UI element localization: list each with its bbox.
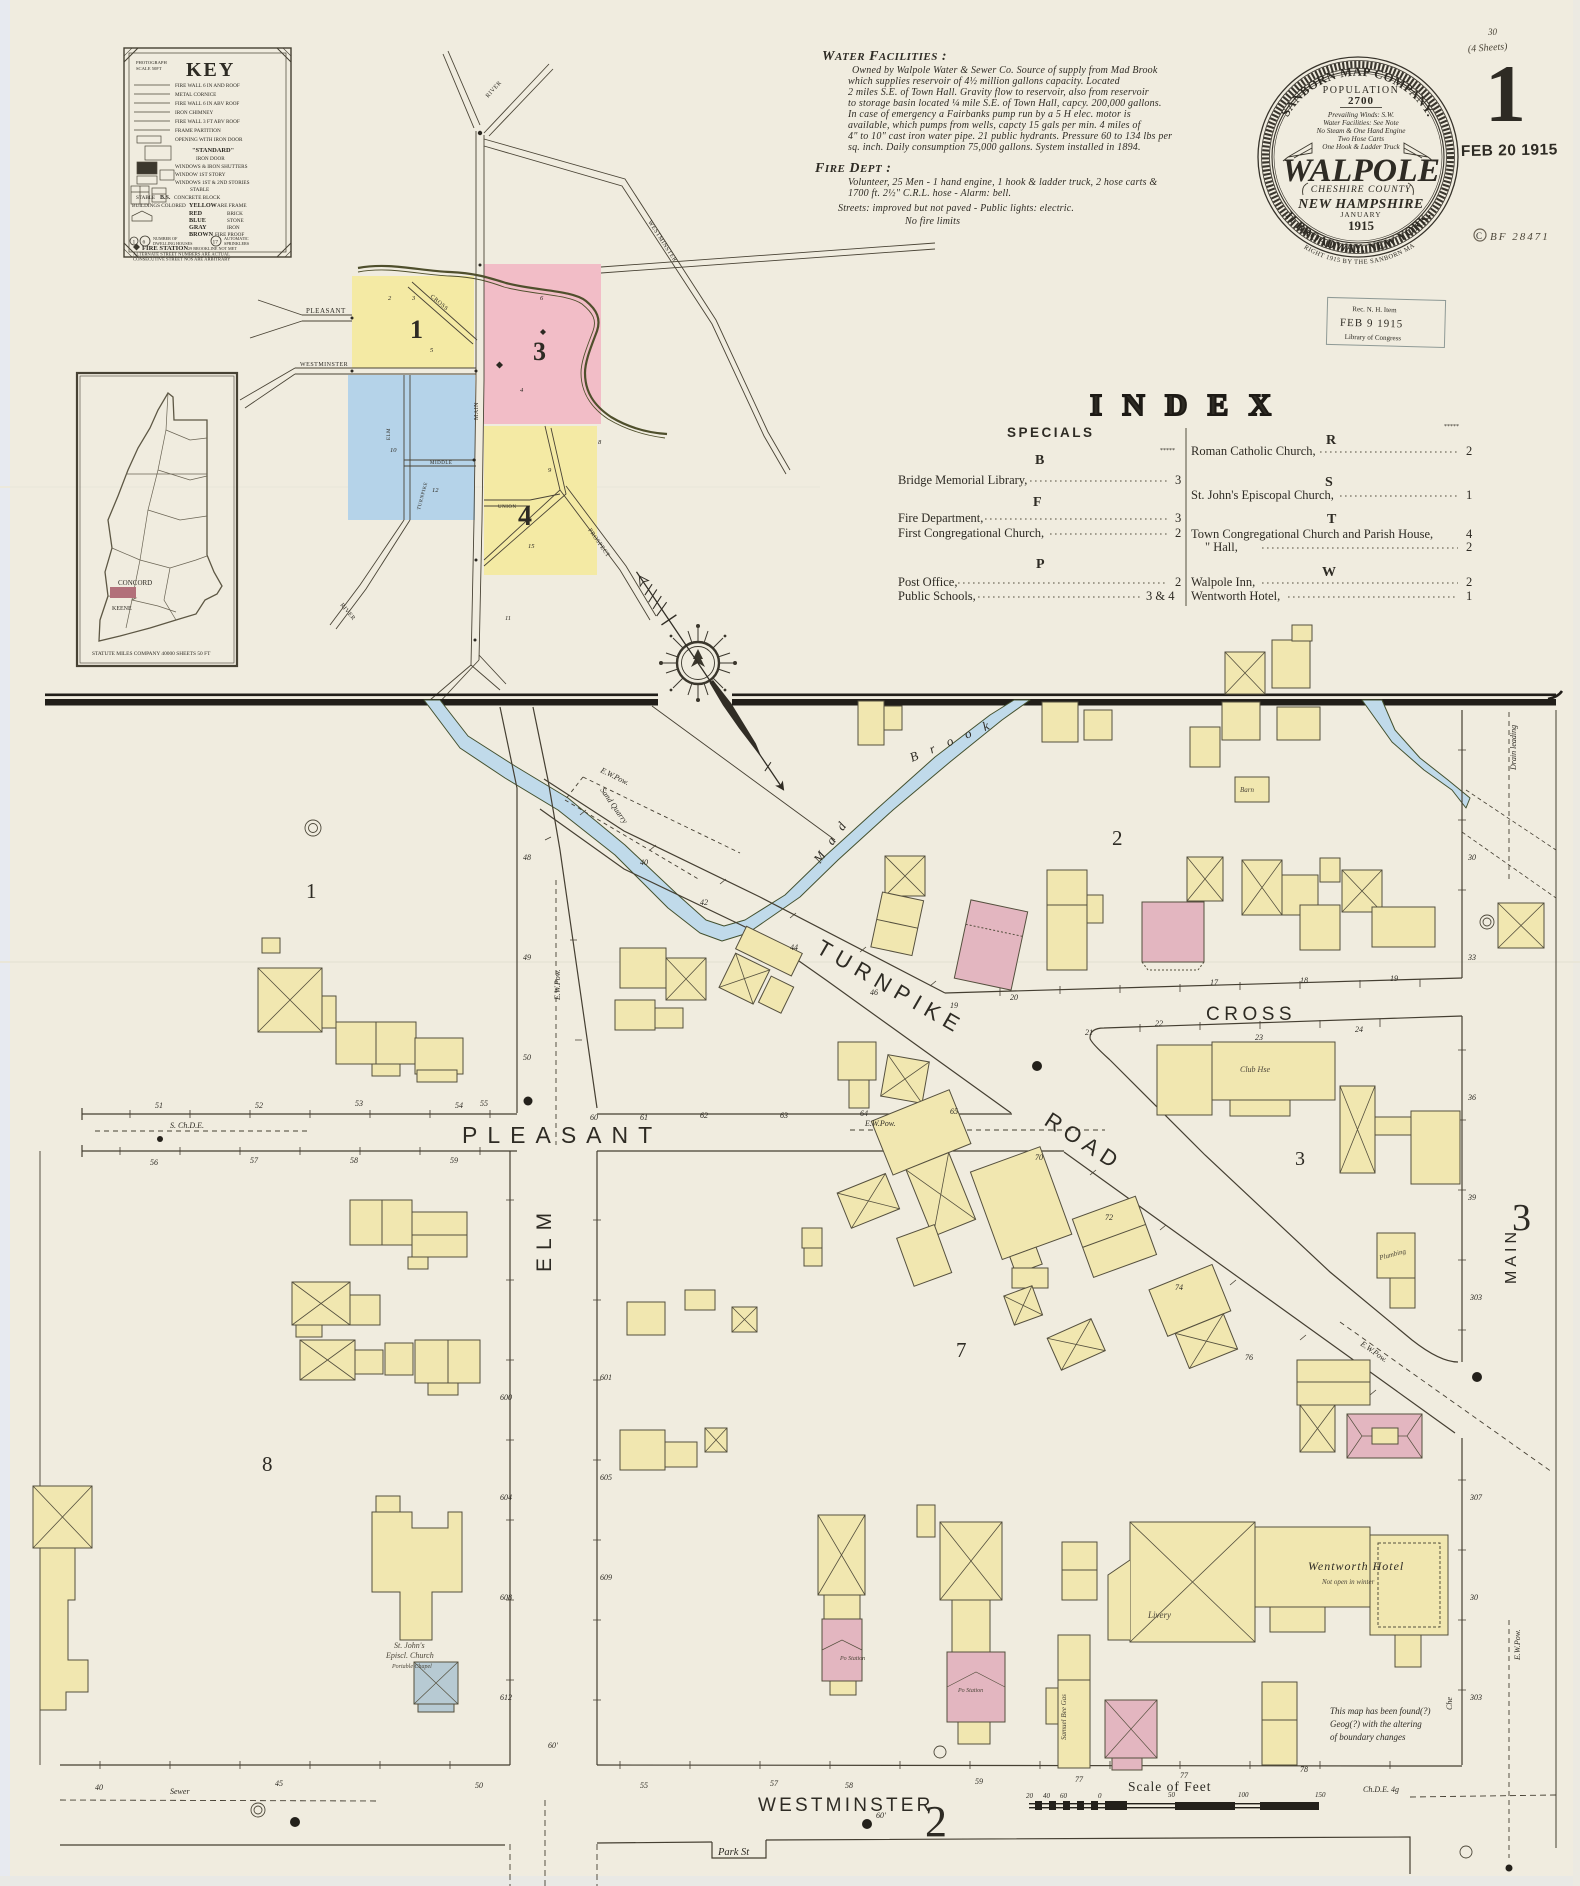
svg-text:IRON: IRON: [227, 225, 240, 231]
svg-text:Roman Catholic Church,: Roman Catholic Church,: [1191, 444, 1316, 458]
svg-text:STATUTE MILES COMPANY 40000 SH: STATUTE MILES COMPANY 40000 SHEETS 50 FT: [92, 651, 211, 657]
svg-text:St. John's: St. John's: [394, 1641, 425, 1650]
svg-text:8: 8: [262, 1452, 273, 1476]
svg-text:77: 77: [1180, 1771, 1189, 1780]
svg-text:17: 17: [1210, 978, 1219, 987]
svg-text:70: 70: [1035, 1153, 1043, 1162]
svg-text:60: 60: [1060, 1792, 1068, 1800]
svg-text:Walpole Inn,: Walpole Inn,: [1191, 575, 1255, 589]
svg-text:Drain leading: Drain leading: [1509, 725, 1518, 771]
svg-text:BLUE: BLUE: [189, 217, 206, 224]
svg-text:39: 39: [1467, 1193, 1476, 1202]
svg-text:20: 20: [1026, 1792, 1034, 1800]
svg-text:Bridge Memorial Library,: Bridge Memorial Library,: [898, 473, 1027, 487]
svg-text:46: 46: [870, 988, 878, 997]
svg-text:1700 ft. 2½" C.R.L. hose - Ala: 1700 ft. 2½" C.R.L. hose - Alarm: bell.: [848, 188, 1011, 199]
svg-text:FEB 9 1915: FEB 9 1915: [1340, 317, 1403, 331]
svg-text:60': 60': [548, 1741, 558, 1750]
svg-text:SCALE 50FT: SCALE 50FT: [136, 66, 162, 71]
svg-text:3: 3: [533, 337, 546, 366]
svg-text:PHOTOGRAPH: PHOTOGRAPH: [136, 60, 167, 65]
svg-text:3: 3: [1295, 1148, 1305, 1170]
svg-text:Two Hose Carts: Two Hose Carts: [1338, 135, 1384, 143]
svg-text:Library of Congress: Library of Congress: [1345, 333, 1402, 342]
svg-text:57: 57: [770, 1779, 779, 1788]
svg-text:11: 11: [505, 615, 511, 622]
svg-text:T: T: [1327, 512, 1337, 527]
svg-text:30: 30: [1469, 1593, 1478, 1602]
svg-text:608: 608: [500, 1593, 512, 1602]
svg-text:FIRE WALL 3 FT ABV ROOF: FIRE WALL 3 FT ABV ROOF: [175, 119, 240, 125]
svg-text:0: 0: [1098, 1792, 1102, 1800]
svg-text:4: 4: [518, 501, 532, 532]
svg-text:59: 59: [450, 1156, 458, 1165]
svg-text:600: 600: [500, 1393, 512, 1402]
svg-text:FEB 20 1915: FEB 20 1915: [1461, 141, 1558, 160]
svg-text:22: 22: [1155, 1019, 1163, 1028]
svg-text:Post Office,: Post Office,: [898, 575, 958, 589]
svg-text:WATER FACILITIES :: WATER FACILITIES :: [822, 49, 947, 64]
svg-text:2 miles S.E. of Town Hall. Gra: 2 miles S.E. of Town Hall. Gravity flow …: [848, 87, 1149, 98]
svg-text:Po Station: Po Station: [839, 1656, 865, 1662]
svg-text:612: 612: [500, 1693, 512, 1702]
svg-text:18: 18: [1300, 976, 1308, 985]
svg-text:ELM: ELM: [533, 1205, 556, 1272]
svg-text:CROSS: CROSS: [1206, 1004, 1296, 1025]
svg-text:B.S.: B.S.: [160, 195, 171, 201]
svg-text:E.W.Pow.: E.W.Pow.: [864, 1119, 895, 1128]
svg-text:49: 49: [523, 953, 531, 962]
svg-text:Wentworth Hotel,: Wentworth Hotel,: [1191, 589, 1280, 603]
svg-text:15: 15: [528, 543, 535, 550]
svg-text:Samuel Bee Gas: Samuel Bee Gas: [1060, 1694, 1068, 1740]
svg-text:FIRE DEPT :: FIRE DEPT :: [814, 161, 891, 176]
svg-text:Barn: Barn: [1240, 786, 1255, 794]
svg-text:12: 12: [432, 487, 439, 494]
svg-text:UNION: UNION: [498, 505, 517, 510]
svg-text:53: 53: [355, 1099, 363, 1108]
svg-text:Owned by Walpole Water & Sewer: Owned by Walpole Water & Sewer Co. Sourc…: [852, 65, 1158, 76]
svg-text:available, which pumps from we: available, which pumps from wells, capct…: [848, 120, 1142, 131]
svg-text:CONSECUTIVE STREET NOS ARE ARB: CONSECUTIVE STREET NOS ARE ARBITRARY: [133, 257, 231, 262]
svg-text:23: 23: [1255, 1033, 1263, 1042]
svg-text:WINDOW 1ST STORY: WINDOW 1ST STORY: [175, 172, 226, 178]
svg-text:Not open in winter: Not open in winter: [1321, 1578, 1375, 1586]
svg-text:21: 21: [1085, 1028, 1093, 1037]
svg-text:STONE: STONE: [227, 218, 244, 224]
svg-text:10: 10: [390, 447, 397, 454]
svg-text:55: 55: [480, 1099, 488, 1108]
svg-text:303: 303: [1469, 1293, 1482, 1302]
svg-text:59: 59: [975, 1777, 983, 1786]
svg-text:B: B: [1035, 453, 1044, 468]
svg-text:609: 609: [600, 1573, 612, 1582]
svg-text:of boundary changes: of boundary changes: [1330, 1732, 1406, 1742]
svg-text:sq. inch. Daily consumption 75: sq. inch. Daily consumption 75,000 gallo…: [848, 142, 1141, 153]
svg-text:2: 2: [925, 1797, 947, 1846]
svg-text:No fire limits: No fire limits: [904, 216, 960, 227]
svg-text:30: 30: [1487, 27, 1498, 37]
svg-text:ARE FRAME: ARE FRAME: [217, 203, 247, 209]
svg-text:78: 78: [1300, 1765, 1308, 1774]
svg-text:FIRE WALL 6 IN AND ROOF: FIRE WALL 6 IN AND ROOF: [175, 83, 240, 89]
svg-text:CHESHIRE COUNTY: CHESHIRE COUNTY: [1311, 184, 1412, 195]
svg-text:One Hook & Ladder Truck: One Hook & Ladder Truck: [1322, 143, 1400, 151]
svg-text:Park St: Park St: [717, 1847, 750, 1858]
svg-text:2: 2: [1112, 826, 1123, 850]
svg-text:50: 50: [1168, 1791, 1176, 1799]
svg-text:48: 48: [523, 853, 531, 862]
svg-text:Fire Department,: Fire Department,: [898, 511, 983, 525]
svg-text:3: 3: [1175, 511, 1181, 525]
svg-text:YELLOW: YELLOW: [189, 202, 218, 209]
svg-text:19: 19: [1390, 974, 1398, 983]
svg-text:36: 36: [1467, 1093, 1476, 1102]
svg-text:60: 60: [590, 1113, 598, 1122]
svg-text:BRICK: BRICK: [227, 211, 243, 217]
svg-text:MAIN: MAIN: [474, 402, 480, 420]
svg-text:WINDOWS & IRON SHUTTERS: WINDOWS & IRON SHUTTERS: [175, 164, 248, 170]
svg-text:Volunteer, 25 Men - 1 hand eng: Volunteer, 25 Men - 1 hand engine, 1 hoo…: [848, 177, 1157, 188]
svg-text:3: 3: [1175, 473, 1181, 487]
svg-text:307: 307: [1469, 1493, 1483, 1502]
svg-text:GRAY: GRAY: [189, 224, 207, 231]
svg-text:P: P: [1036, 557, 1045, 572]
svg-text:1: 1: [1466, 488, 1472, 502]
svg-text:42: 42: [700, 898, 708, 907]
svg-text:*****: *****: [1444, 424, 1459, 430]
svg-text:which supplies reservoir of 4½: which supplies reservoir of 4½ million g…: [848, 76, 1121, 87]
svg-text:150: 150: [1315, 1791, 1326, 1799]
svg-text:54: 54: [455, 1101, 463, 1110]
svg-text:Po Station: Po Station: [957, 1688, 983, 1694]
svg-text:FRAME PARTITION: FRAME PARTITION: [175, 128, 221, 134]
svg-text:WINDOWS 1ST & 2ND STORIES: WINDOWS 1ST & 2ND STORIES: [175, 180, 250, 186]
svg-text:First Congregational Church,: First Congregational Church,: [898, 526, 1044, 540]
svg-text:CONCORD: CONCORD: [118, 579, 152, 587]
svg-text:KEENE: KEENE: [112, 606, 132, 612]
svg-text:4" to 10" cast iron water pipe: 4" to 10" cast iron water pipe. 21 publi…: [848, 131, 1172, 142]
svg-text:72: 72: [1105, 1213, 1113, 1222]
svg-text:Che: Che: [1445, 1697, 1454, 1710]
svg-text:IRON DOOR: IRON DOOR: [196, 156, 225, 162]
svg-text:IRON CHIMNEY: IRON CHIMNEY: [175, 110, 213, 116]
svg-text:Geog(?) with the altering: Geog(?) with the altering: [1330, 1719, 1422, 1729]
svg-text:KEY: KEY: [186, 59, 235, 81]
svg-text:56: 56: [150, 1158, 158, 1167]
svg-text:FIRE WALL 6 IN ABV ROOF: FIRE WALL 6 IN ABV ROOF: [175, 101, 239, 107]
svg-text:1: 1: [306, 879, 317, 903]
svg-text:3 & 4: 3 & 4: [1146, 589, 1175, 603]
svg-text:Sewer: Sewer: [170, 1787, 190, 1796]
svg-text:74: 74: [1175, 1283, 1183, 1292]
svg-text:R: R: [1326, 433, 1337, 448]
svg-text:604: 604: [500, 1493, 512, 1502]
svg-text:Rec. N. H. Item: Rec. N. H. Item: [1352, 305, 1397, 314]
svg-text:20: 20: [1010, 993, 1018, 1002]
svg-text:Prevailing Winds: S.W.: Prevailing Winds: S.W.: [1327, 111, 1394, 119]
svg-text:*****: *****: [1160, 448, 1175, 454]
svg-text:57: 57: [250, 1156, 259, 1165]
svg-text:52: 52: [255, 1101, 263, 1110]
svg-text:63: 63: [780, 1111, 788, 1120]
svg-text:62: 62: [700, 1111, 708, 1120]
svg-text:Water Facilities: See Note: Water Facilities: See Note: [1323, 119, 1399, 127]
svg-text:17: 17: [213, 240, 219, 246]
svg-text:WESTMINSTER: WESTMINSTER: [758, 1795, 934, 1816]
svg-text:E.W.Pow.: E.W.Pow.: [553, 970, 562, 1001]
svg-text:76: 76: [1245, 1353, 1253, 1362]
svg-text:S. Ch.D.E.: S. Ch.D.E.: [170, 1121, 204, 1130]
svg-text:STABLE: STABLE: [190, 187, 209, 193]
svg-text:SPECIALS: SPECIALS: [1007, 425, 1095, 440]
svg-text:605: 605: [600, 1473, 612, 1482]
svg-text:33: 33: [1467, 953, 1476, 962]
svg-text:4: 4: [1466, 527, 1473, 541]
svg-text:Streets: improved but not pave: Streets: improved but not paved - Public…: [838, 203, 1074, 214]
svg-text:PLEASANT: PLEASANT: [462, 1122, 662, 1148]
svg-text:Episcl. Church: Episcl. Church: [385, 1651, 434, 1660]
svg-text:W: W: [1322, 565, 1336, 580]
svg-text:601: 601: [600, 1373, 612, 1382]
svg-text:MIDDLE: MIDDLE: [430, 461, 452, 466]
svg-text:58: 58: [845, 1781, 853, 1790]
svg-text:2: 2: [1466, 575, 1472, 589]
svg-text:40: 40: [1043, 1792, 1051, 1800]
svg-text:77: 77: [1075, 1775, 1084, 1784]
svg-text:E.W.Pow.: E.W.Pow.: [1513, 1630, 1522, 1661]
svg-text:1915: 1915: [1348, 218, 1375, 233]
svg-text:30: 30: [1467, 853, 1476, 862]
svg-text:Portable Chapel: Portable Chapel: [391, 1664, 432, 1670]
svg-text:19: 19: [950, 1001, 958, 1010]
svg-text:40: 40: [640, 858, 648, 867]
svg-text:This map has been found(?): This map has been found(?): [1330, 1706, 1431, 1716]
svg-text:WESTMINSTER: WESTMINSTER: [300, 362, 348, 368]
svg-text:to storage basin located ¼ mil: to storage basin located ¼ mile S.E. of …: [848, 98, 1162, 109]
svg-text:50: 50: [475, 1781, 483, 1790]
svg-text:Ch.D.E. 4g: Ch.D.E. 4g: [1363, 1785, 1399, 1794]
svg-text:65: 65: [950, 1107, 958, 1116]
svg-text:" Hall,: " Hall,: [1205, 540, 1238, 554]
svg-text:St. John's Episcopal Church,: St. John's Episcopal Church,: [1191, 488, 1334, 502]
svg-text:2: 2: [1175, 526, 1181, 540]
svg-text:7: 7: [956, 1338, 967, 1362]
svg-text:2: 2: [1466, 444, 1472, 458]
svg-text:51: 51: [155, 1101, 163, 1110]
svg-text:Town Congregational Church and: Town Congregational Church and Parish Ho…: [1191, 527, 1433, 541]
svg-text:50: 50: [523, 1053, 531, 1062]
svg-text:RED: RED: [189, 210, 203, 217]
svg-text:45: 45: [275, 1779, 283, 1788]
svg-text:"STANDARD": "STANDARD": [192, 147, 234, 154]
svg-text:303: 303: [1469, 1693, 1482, 1702]
svg-text:1: 1: [410, 315, 423, 344]
svg-text:44: 44: [790, 943, 798, 952]
svg-text:55: 55: [640, 1781, 648, 1790]
svg-text:BROWN: BROWN: [189, 231, 214, 238]
svg-text:OPENING WITH IRON DOOR: OPENING WITH IRON DOOR: [175, 137, 243, 143]
svg-text:C: C: [1476, 231, 1482, 241]
svg-text:Wentworth Hotel: Wentworth Hotel: [1308, 1559, 1404, 1573]
svg-text:2700: 2700: [1348, 95, 1374, 107]
svg-text:METAL CORNICE: METAL CORNICE: [175, 92, 216, 98]
svg-text:3: 3: [1512, 1197, 1531, 1239]
svg-text:Club Hse: Club Hse: [1240, 1065, 1270, 1074]
svg-text:1: 1: [1485, 48, 1526, 139]
svg-text:F: F: [1033, 495, 1042, 510]
svg-text:PLEASANT: PLEASANT: [306, 307, 346, 315]
svg-text:No Steam & One Hand Engine: No Steam & One Hand Engine: [1316, 127, 1407, 135]
svg-text:Livery: Livery: [1147, 1610, 1171, 1620]
svg-text:BF 28471: BF 28471: [1490, 231, 1550, 243]
svg-text:60': 60': [876, 1811, 886, 1820]
svg-text:58: 58: [350, 1156, 358, 1165]
svg-text:61: 61: [640, 1113, 648, 1122]
svg-text:Public Schools,: Public Schools,: [898, 589, 976, 603]
svg-text:40: 40: [95, 1783, 103, 1792]
svg-text:1: 1: [133, 240, 136, 246]
svg-text:ELM: ELM: [387, 428, 392, 440]
svg-text:29 BROOKLINE NOT MET: 29 BROOKLINE NOT MET: [188, 246, 237, 251]
svg-text:100: 100: [1238, 1791, 1249, 1799]
svg-text:1: 1: [1466, 589, 1472, 603]
svg-text:2: 2: [1466, 540, 1472, 554]
svg-text:64: 64: [860, 1109, 868, 1118]
svg-text:In case of emergency a Fairban: In case of emergency a Fairbanks pump ru…: [847, 109, 1131, 120]
svg-text:24: 24: [1355, 1025, 1363, 1034]
svg-text:CONCRETE BLOCK: CONCRETE BLOCK: [174, 195, 221, 201]
svg-text:2: 2: [1175, 575, 1181, 589]
